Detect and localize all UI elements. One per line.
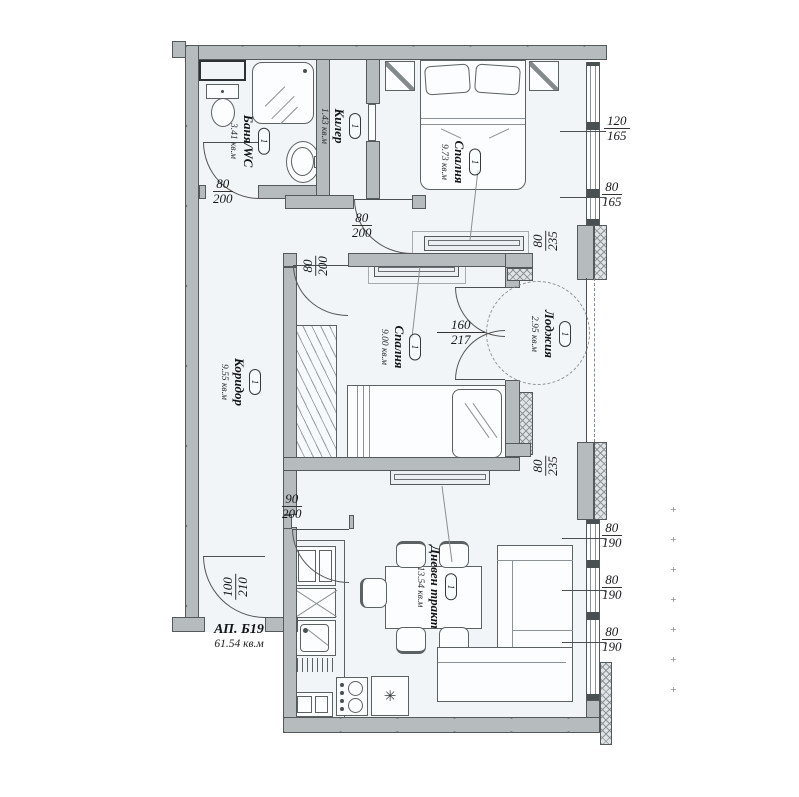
bed-line	[369, 386, 370, 461]
loggia-railing	[594, 278, 595, 442]
apartment-id: АП. Б19	[214, 622, 264, 638]
dim-line	[562, 538, 606, 539]
toilet-button	[221, 90, 224, 93]
room-label-living: 1 Дневен тракт 13.54 кв.м	[415, 545, 457, 628]
window-glass-line	[595, 520, 596, 700]
window-divider	[587, 694, 599, 700]
cabinet-door	[297, 696, 312, 713]
radiator-core	[394, 474, 486, 480]
floor-plan: ✳	[0, 0, 799, 797]
room-label-bedroom1: 1 Спалня 9.73 кв.м	[439, 141, 481, 184]
survey-tick: +	[670, 565, 677, 574]
dim-window-80-190: 80190	[602, 521, 622, 551]
room-label-bedroom2: 1 Спалня 9.00 кв.м	[379, 326, 421, 369]
wall-hall-bedroom1	[412, 195, 426, 209]
room-area: 3.41 кв.м	[228, 123, 238, 159]
room-area: 13.54 кв.м	[415, 567, 425, 608]
room-name: Спалня	[451, 141, 467, 184]
pillow	[424, 63, 471, 95]
sofa-back-line	[438, 662, 566, 663]
wall-pillar	[577, 225, 594, 280]
room-tag: 1	[409, 334, 421, 361]
wall-top	[185, 45, 607, 60]
survey-tick: +	[670, 505, 677, 514]
wall-stub	[505, 253, 533, 268]
window-divider	[587, 189, 599, 197]
room-area: 9.00 кв.м	[379, 329, 389, 365]
window-divider	[587, 612, 599, 620]
wall-bedroom1-bottom	[348, 253, 528, 267]
window-glass-line	[590, 520, 591, 700]
dim-line	[560, 197, 606, 198]
room-area: 1.43 кв.м	[319, 108, 329, 144]
burner	[348, 681, 363, 696]
wall-hall-bedroom1	[285, 195, 354, 209]
blanket-line	[421, 118, 525, 119]
window-divider	[587, 560, 599, 568]
loggia-edge	[586, 278, 587, 442]
room-name: Коридор	[231, 358, 247, 406]
room-name: Баня/WC	[240, 115, 256, 168]
knob	[340, 691, 344, 695]
blanket-line	[421, 124, 525, 125]
bath-sink-basin	[291, 147, 314, 176]
shower-head	[303, 69, 307, 73]
bed-pillow	[452, 389, 502, 458]
wall-stub	[505, 443, 531, 457]
window-strip-top	[586, 62, 600, 225]
burner	[348, 698, 363, 713]
window-divider	[587, 62, 599, 66]
room-label-loggia: 1 Лоджия 2.95 кв.м	[529, 310, 571, 358]
chair	[360, 578, 387, 608]
wall-corridor-living	[283, 527, 297, 718]
window-glass-line	[595, 62, 596, 225]
room-area: 9.73 кв.м	[439, 144, 449, 180]
dim-balcony-door: 160217	[437, 318, 485, 348]
wall-bedroom2-left	[283, 267, 297, 515]
room-name: Спалня	[391, 326, 407, 369]
room-name: Дневен тракт	[427, 545, 443, 628]
survey-tick: +	[670, 625, 677, 634]
nightstand	[385, 61, 415, 91]
radiator-core	[428, 240, 520, 246]
knob	[340, 683, 344, 687]
room-area: 2.95 кв.м	[529, 316, 539, 352]
wall-bottom	[283, 717, 600, 733]
room-label-closet: 1 Килер 1.43 кв.м	[319, 108, 361, 144]
room-tag: 1	[445, 574, 457, 601]
dim-line	[562, 590, 606, 591]
bed-line	[363, 386, 364, 461]
window-glass-line	[590, 62, 591, 225]
cabinet-door	[315, 696, 328, 713]
sofa-horizontal	[437, 647, 573, 702]
fridge: ✳	[371, 676, 409, 716]
dim-line	[560, 131, 606, 132]
chair	[396, 627, 426, 654]
wall-closet-right	[366, 141, 380, 199]
window-strip-bottom	[586, 520, 600, 700]
sofa-seat-line	[513, 630, 573, 631]
survey-tick: +	[670, 595, 677, 604]
dim-loggia-top: 80235	[531, 231, 561, 251]
room-tag: 1	[258, 128, 270, 155]
wall-living-door	[349, 515, 354, 529]
wall-pillar	[577, 442, 594, 520]
wall-entrance-left	[172, 617, 205, 632]
room-label-bath: 1 Баня/WC 3.41 кв.м	[228, 115, 270, 168]
sofa-armrest-line	[497, 560, 573, 561]
dim-window-120-165: 120165	[604, 114, 630, 144]
survey-tick: +	[670, 535, 677, 544]
bed-line	[357, 386, 358, 461]
room-label-corridor: 1 Коридор 9.55 кв.м	[219, 358, 261, 406]
room-area: 9.55 кв.м	[219, 364, 229, 400]
survey-tick: +	[670, 655, 677, 664]
nightstand	[529, 61, 559, 91]
dim-entrance-door: 100210	[221, 574, 251, 600]
pillow	[474, 63, 521, 95]
insulation	[594, 225, 607, 280]
insulation	[594, 442, 607, 520]
dim-window-80-190: 80190	[602, 625, 622, 655]
dim-bedroom2-door: 80200	[301, 256, 331, 276]
wall-left	[185, 45, 199, 632]
dim-loggia-bottom: 80235	[531, 456, 561, 476]
sink-drainer	[297, 658, 333, 672]
apartment-label: АП. Б19 61.54 кв.м	[214, 622, 264, 650]
wall-nub	[172, 41, 186, 58]
wall-bath-bottom	[199, 185, 206, 199]
survey-tick: +	[670, 685, 677, 694]
window-divider	[587, 122, 599, 130]
room-name: Лоджия	[541, 310, 557, 358]
dim-window-80-165: 80165	[602, 180, 622, 210]
window-divider	[587, 520, 599, 524]
apartment-area: 61.54 кв.м	[214, 638, 264, 650]
insulation	[507, 268, 533, 281]
knob	[340, 699, 344, 703]
wall-bedroom2-bottom	[283, 457, 520, 471]
dim-line	[562, 642, 606, 643]
insulation	[600, 662, 612, 745]
window-divider	[587, 219, 599, 225]
knob	[340, 707, 344, 711]
room-tag: 1	[249, 369, 261, 396]
room-tag: 1	[469, 149, 481, 176]
freezer-icon: ✳	[384, 687, 397, 705]
room-tag: 1	[559, 321, 571, 348]
room-name: Килер	[331, 108, 347, 143]
dim-living-door: 90200	[282, 492, 302, 522]
wall-closet-right	[366, 59, 380, 104]
toilet-niche	[199, 60, 246, 81]
wardrobe	[295, 325, 337, 460]
room-tag: 1	[349, 113, 361, 140]
dim-bedroom1-door: 80200	[352, 211, 372, 241]
dim-bath-door: 80200	[213, 177, 233, 207]
radiator-core	[378, 267, 455, 272]
dim-window-80-190: 80190	[602, 573, 622, 603]
closet-door-leaf	[368, 104, 376, 141]
